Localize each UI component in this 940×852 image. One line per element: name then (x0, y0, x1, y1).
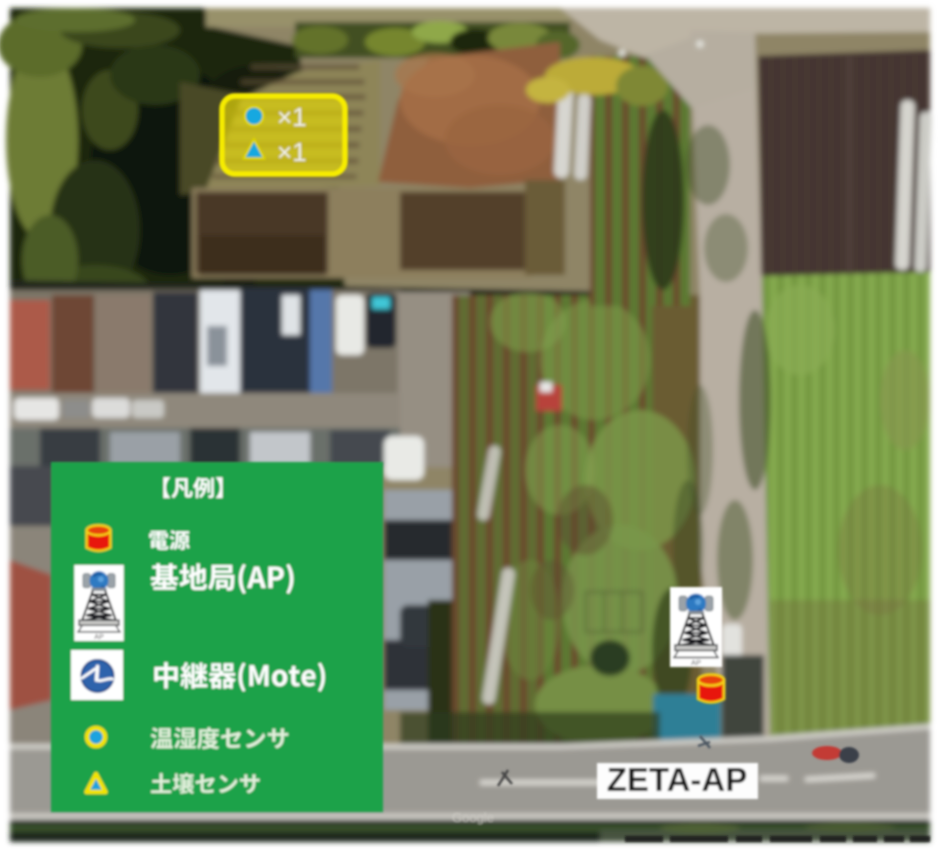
svg-text:Google: Google (452, 810, 494, 825)
svg-text:×1: ×1 (277, 102, 307, 132)
svg-text:ZETA-AP: ZETA-AP (607, 761, 748, 798)
svg-text:×1: ×1 (277, 137, 307, 167)
